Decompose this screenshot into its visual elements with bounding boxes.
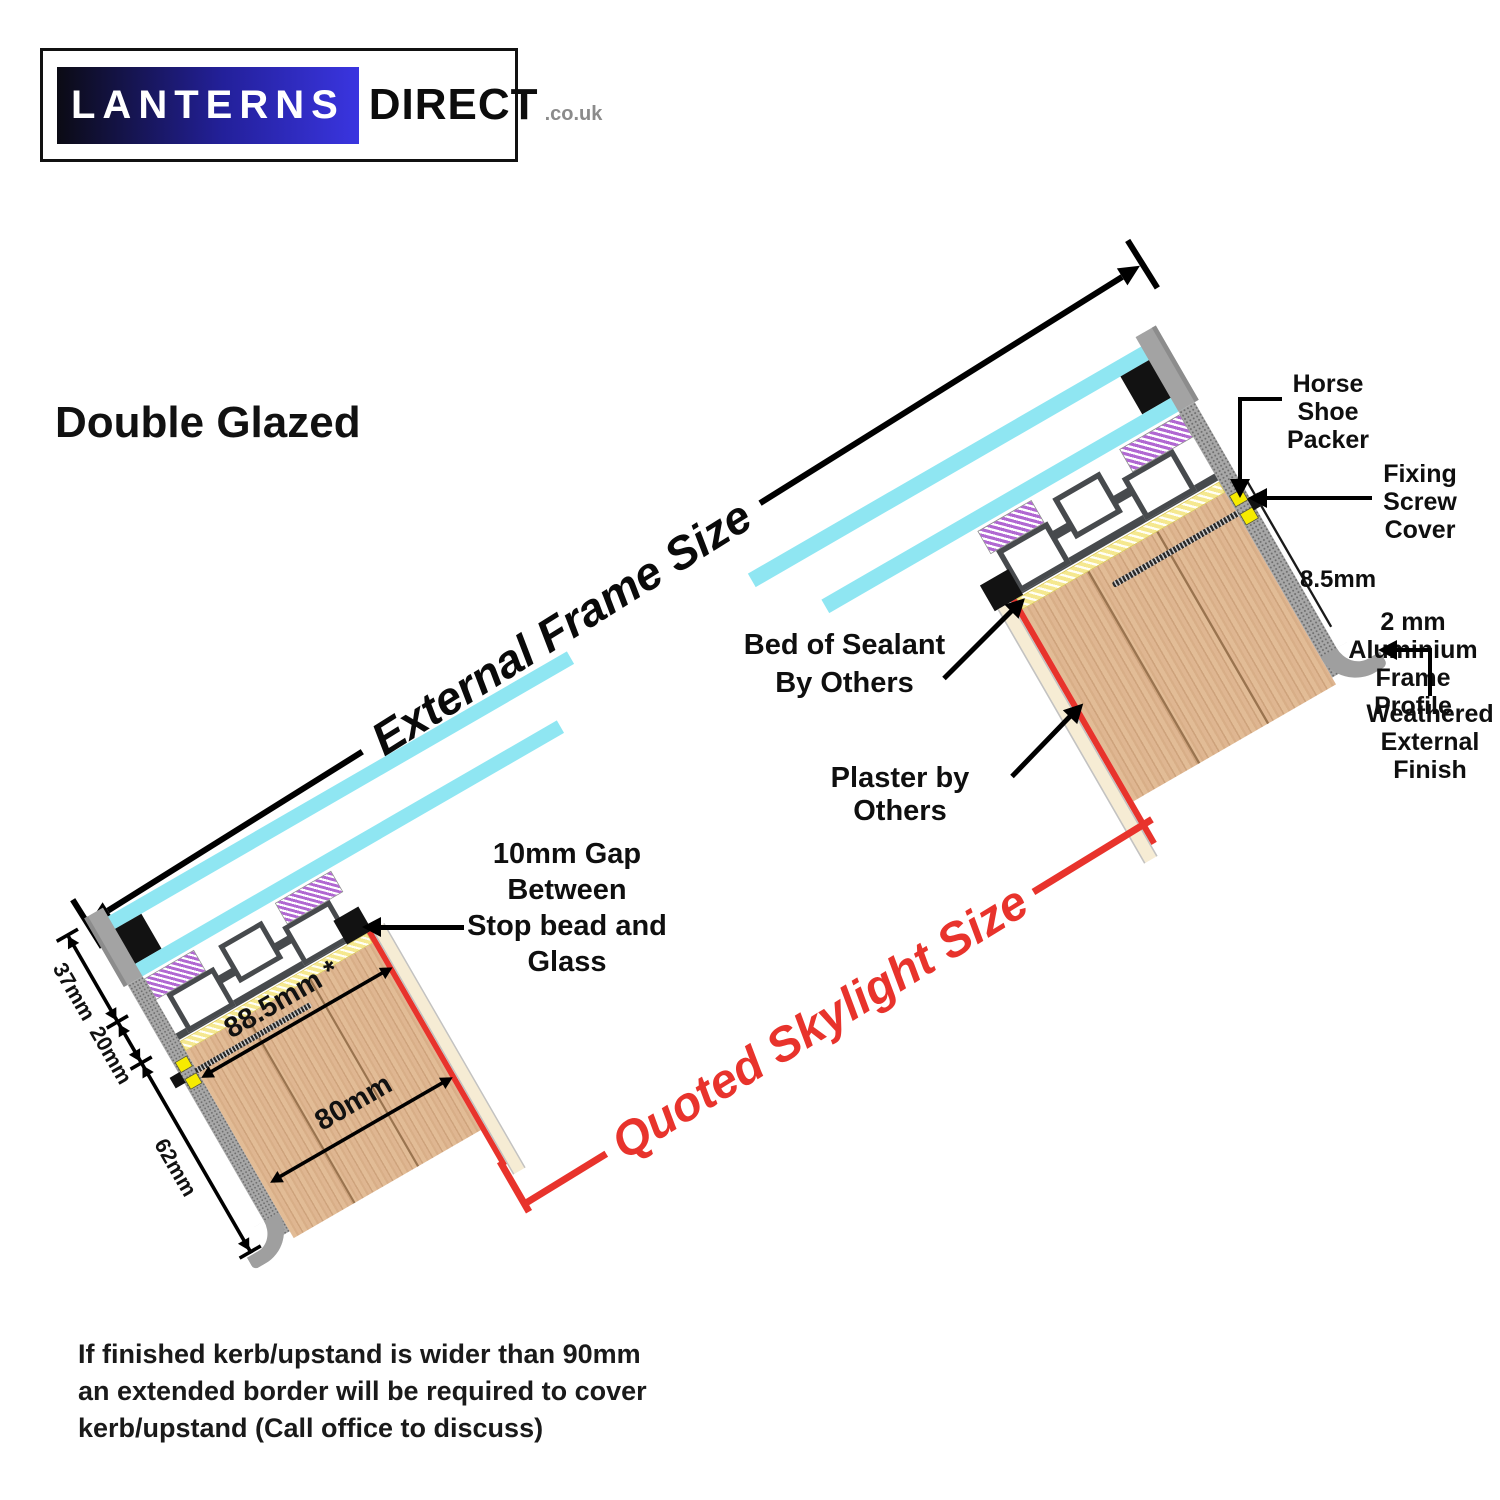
footer-line: kerb/upstand (Call office to discuss): [78, 1410, 647, 1447]
logo-lanterns-wordmark: LANTERNS: [57, 67, 359, 144]
horse-shoe-line: Horse: [1280, 370, 1376, 398]
frame-web: [271, 934, 295, 953]
weathered-finish-label: Weathered External Finish: [1360, 700, 1500, 784]
arrowhead-left-icon: [1248, 488, 1267, 508]
gap-note-line: Glass: [452, 944, 682, 980]
dimension-line-segment: [1032, 816, 1154, 894]
bed-of-sealant-leader-line: [942, 609, 1013, 680]
gap-note-label: 10mm Gap Between Stop bead and Glass: [452, 836, 682, 980]
dimension-label-37mm: 37mm: [45, 955, 102, 1030]
timber-kerb: [1023, 493, 1336, 802]
weathered-finish-leader-line: [1428, 650, 1432, 696]
weathered-finish-line: External Finish: [1360, 728, 1500, 784]
gap-note-line: Stop bead and: [452, 908, 682, 944]
gap-note-line: Between: [452, 872, 682, 908]
fixing-screw-line: Screw: [1372, 488, 1468, 516]
brand-logo: LANTERNS DIRECT .co.uk: [40, 48, 518, 162]
bed-of-sealant-line: By Others: [742, 664, 947, 702]
horse-shoe-leader-line: [1238, 397, 1282, 401]
diagram-canvas: LANTERNS DIRECT .co.uk Double Glazed Ext…: [0, 0, 1500, 1500]
gap-note-leader-line: [380, 925, 464, 930]
page-title: Double Glazed: [55, 398, 361, 448]
footer-line: If finished kerb/upstand is wider than 9…: [78, 1336, 647, 1373]
arrowhead-left-icon: [1378, 640, 1397, 660]
plaster-by-others-label: Plaster by Others: [790, 762, 1010, 828]
arrowhead-down-icon: [1230, 479, 1250, 498]
bed-of-sealant-label: Bed of Sealant By Others: [742, 626, 947, 702]
frame-web: [1049, 521, 1075, 542]
horse-shoe-line: Shoe: [1280, 398, 1376, 426]
arrowhead-left-icon: [362, 917, 381, 937]
fixing-screw-line: Fixing: [1372, 460, 1468, 488]
frame-web: [215, 966, 239, 985]
dimension-label-62mm: 62mm: [146, 1131, 203, 1206]
horse-shoe-leader-line: [1238, 397, 1242, 481]
dimension-label-8-5mm: 8.5mm: [1300, 566, 1390, 594]
fixing-screw-line: Cover: [1372, 516, 1468, 544]
logo-direct-wordmark: DIRECT: [369, 80, 539, 130]
horse-shoe-line: Packer: [1280, 426, 1376, 454]
frame-web: [1110, 486, 1136, 507]
fixing-screw-cover-label: Fixing Screw Cover: [1372, 460, 1468, 544]
bed-of-sealant-line: Bed of Sealant: [742, 626, 947, 664]
weathered-finish-leader-line: [1396, 648, 1432, 652]
fixing-screw-leader-line: [1266, 496, 1372, 500]
footer-line: an extended border will be required to c…: [78, 1373, 647, 1410]
horse-shoe-packer-label: Horse Shoe Packer: [1280, 370, 1376, 454]
logo-tld-text: .co.uk: [545, 103, 603, 126]
weathered-finish-line: Weathered: [1360, 700, 1500, 728]
aluminium-profile-line: 2 mm: [1348, 608, 1478, 636]
footer-note: If finished kerb/upstand is wider than 9…: [78, 1336, 647, 1447]
gap-note-line: 10mm Gap: [452, 836, 682, 872]
skylight-section-left: 37mm 20mm 62mm 88.5mm * 80mm: [93, 630, 849, 1349]
